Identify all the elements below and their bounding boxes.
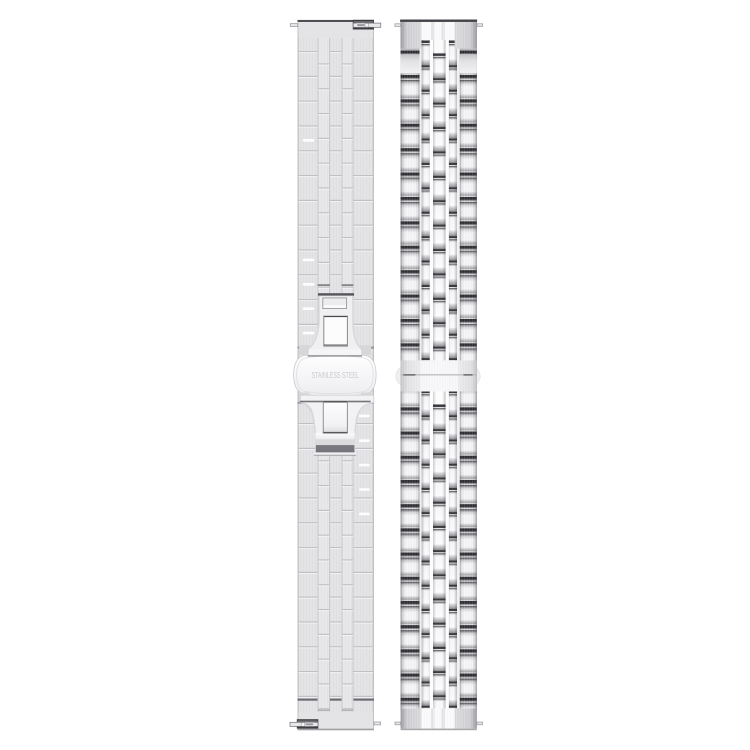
- svg-text:STAINLESS STEEL: STAINLESS STEEL: [311, 370, 359, 380]
